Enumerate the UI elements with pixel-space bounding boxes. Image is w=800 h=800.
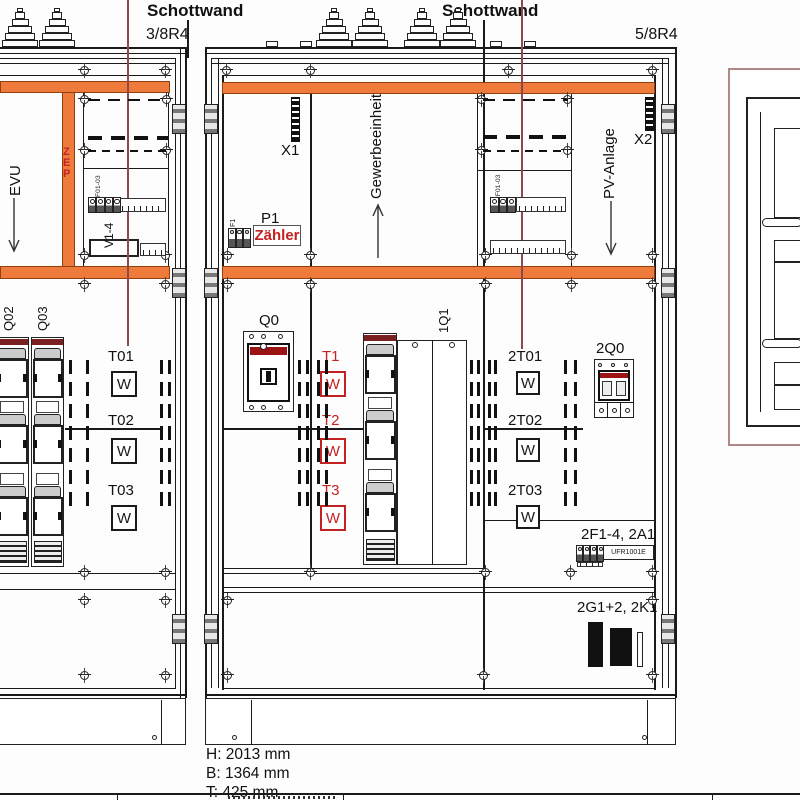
fuse-module-cap [34, 348, 61, 359]
fuse-module-cap [366, 344, 394, 355]
screw-icon [80, 66, 89, 75]
breaker-label-q0: Q0 [259, 313, 279, 329]
screw-icon [161, 596, 170, 605]
cable-gland-icon [352, 40, 388, 47]
cable-gland-icon [450, 19, 467, 26]
screw-hole-icon [261, 405, 266, 410]
cable-gland-icon [414, 19, 431, 26]
screw-hole-icon [598, 363, 602, 367]
screw-hole-icon [152, 735, 157, 740]
t2-connection-line [223, 428, 363, 430]
breaker-q0-handle [266, 371, 271, 382]
roof-stub [490, 41, 502, 47]
screw-icon [80, 280, 89, 289]
screw-hole-icon [612, 408, 617, 413]
schottwand-marker-line-left [187, 20, 189, 58]
screw-icon [504, 66, 513, 75]
panel-line [222, 587, 655, 588]
terminal-rail [119, 198, 166, 212]
cable-gland-icon [440, 40, 476, 47]
fuse-cell-dot [578, 547, 582, 551]
screw-icon [80, 568, 89, 577]
side-view-rail [774, 262, 800, 339]
roof-stub [524, 41, 536, 47]
busbar-dashed-line [69, 360, 72, 513]
subpanel-label-v1-4: V1-4 [103, 223, 116, 248]
screw-icon [481, 568, 490, 577]
meter-w-box: W [320, 438, 346, 464]
fuse-module-pin [365, 436, 369, 444]
schottwand-partition-line [483, 20, 485, 690]
frame-line [0, 63, 176, 64]
dimension-height: H: 2013 mm [206, 745, 290, 764]
fuse-module-pin [58, 440, 62, 448]
contactor-block-icon [588, 622, 603, 667]
cable-gland-icon [316, 40, 352, 47]
fuse-module-pin [0, 512, 1, 520]
cable-gland-icon [453, 12, 463, 19]
zone-label-pv-anlage: PV-Anlage [602, 128, 618, 199]
fuse-module-pin [23, 440, 27, 448]
cable-gland-icon [2, 40, 38, 47]
cable-gland-icon [17, 8, 23, 12]
subpanel-border [477, 170, 572, 171]
busbar-dashed-line [325, 360, 328, 513]
frame-line [222, 688, 655, 689]
busbar-dashed-line [488, 360, 491, 513]
fuse-module-cap [366, 410, 394, 421]
cable-gland-icon [54, 8, 60, 12]
busbar-dashed-line [298, 360, 301, 513]
hinge-icon [204, 104, 218, 134]
meter-point-label: 2T01 [508, 349, 542, 365]
pv-direction-arrow-icon [603, 201, 619, 259]
plinth-left [0, 698, 186, 745]
fuse-module-pin [33, 512, 37, 520]
frame-line [205, 694, 677, 696]
cable-gland-icon [5, 33, 35, 40]
cable-gland-icon [358, 26, 382, 33]
breaker-2q0-line [594, 402, 634, 403]
meter-point-label: T02 [108, 413, 134, 429]
breaker-q0-red-band [250, 347, 287, 355]
fuse-module-pin [0, 440, 1, 448]
side-view-bracket [774, 362, 800, 385]
title-block-border [0, 793, 800, 795]
subpanel-border [477, 94, 478, 266]
roof-stub [300, 41, 312, 47]
fuse-cell-dot [599, 547, 603, 551]
terminal-rail [140, 243, 166, 256]
fuse-module-cap [34, 414, 61, 425]
frame-line [0, 58, 176, 59]
fuse-module-pin [365, 370, 369, 378]
cable-gland-icon [326, 19, 343, 26]
screw-icon [648, 671, 657, 680]
hinge-icon [172, 268, 186, 298]
section-divider [310, 94, 312, 570]
fuse-cell-dot [500, 199, 506, 205]
screw-icon [306, 66, 315, 75]
screw-hole-icon [599, 408, 604, 413]
frame-line [218, 58, 219, 688]
screw-icon [306, 251, 315, 260]
guide-line [127, 0, 129, 346]
schottwand-label-left: Schottwand [147, 2, 243, 20]
terminal-strip-x2-icon [645, 97, 654, 131]
cable-gland-icon [331, 8, 337, 12]
side-view-line [760, 112, 761, 412]
frame-line [0, 75, 171, 76]
fuse-module-pin [365, 508, 369, 516]
meter-w-box: W [516, 371, 540, 395]
meter-name-label: Zähler [254, 227, 299, 244]
fuse-cell-dot [114, 199, 119, 204]
fuse-module-pin [391, 436, 395, 444]
screw-icon [648, 568, 657, 577]
fuse-module-cap [0, 348, 26, 359]
subpanel-border [168, 93, 169, 266]
frame-line [185, 47, 187, 698]
cable-gland-icon [45, 26, 69, 33]
fuse-strip-band [32, 339, 63, 345]
screw-hole-icon [249, 334, 254, 339]
meter-w-box: W [111, 505, 137, 531]
breaker-label-2q0: 2Q0 [596, 341, 624, 357]
frame-line [0, 53, 187, 54]
screw-icon [80, 671, 89, 680]
zone-label-gewerbeeinheit: Gewerbeeinheit [369, 94, 385, 199]
strip-label-q03: Q03 [36, 306, 50, 331]
frame-line [675, 47, 677, 698]
plinth-line [161, 700, 162, 745]
cable-gland-icon [410, 26, 434, 33]
subpanel-border [83, 93, 84, 266]
fuse-connector [36, 473, 59, 485]
cable-gland-icon [417, 12, 427, 19]
terminal-rail [490, 240, 566, 254]
gewerbe-direction-arrow-icon [370, 203, 386, 261]
panel-line [222, 573, 484, 574]
fuse-connector [36, 401, 59, 413]
meter-point-label: 2T02 [508, 413, 542, 429]
screw-icon [80, 596, 89, 605]
hinge-icon [661, 104, 675, 134]
aux-fuse-label-f1: F1 [230, 219, 237, 227]
strip-label-q02: Q02 [2, 306, 16, 331]
cable-gland-icon [355, 33, 385, 40]
busbar-dashed-line [160, 360, 163, 513]
cable-gland-icon [319, 33, 349, 40]
panel-line [222, 568, 484, 569]
screw-icon [306, 280, 315, 289]
fuse-module-pin [23, 512, 27, 520]
terminal-label-x2: X2 [634, 132, 652, 148]
busbar-dashed-line [306, 360, 309, 513]
side-view-bracket [774, 240, 800, 262]
title-block-clipped-text [228, 796, 336, 799]
busbar-cover-top-left [0, 81, 170, 93]
panel-line [222, 592, 655, 593]
cable-gland-icon [39, 40, 75, 47]
screw-hole-icon [278, 405, 283, 410]
frame-line [211, 58, 669, 59]
screw-icon [223, 596, 232, 605]
busbar-dashed-line [564, 360, 567, 513]
meter-w-box: W [320, 371, 346, 397]
roof-stub [266, 41, 278, 47]
meter-w-box: W [320, 505, 346, 531]
meter-w-box: W [516, 505, 540, 529]
feed-label-evu: EVU [8, 165, 24, 196]
terminal-label-x1: X1 [281, 143, 299, 159]
screw-hole-icon [278, 334, 283, 339]
subpanel-border [571, 94, 572, 266]
cable-gland-icon [329, 12, 339, 19]
frame-line [211, 63, 669, 64]
screw-hole-icon [624, 363, 628, 367]
frame-line [175, 58, 176, 688]
frame-line [0, 688, 176, 689]
fuse-strip-terminal [0, 541, 27, 563]
meter-w-box: W [516, 438, 540, 462]
screw-hole-icon [611, 363, 615, 367]
contactor-block-icon [610, 628, 632, 666]
breaker-2q0-line [607, 402, 608, 418]
frame-line [180, 47, 181, 698]
subpanel-border [83, 168, 169, 169]
relay-group-label: 2F1-4, 2A1 [581, 527, 655, 543]
screw-icon [481, 251, 490, 260]
fuse-connector [368, 469, 392, 481]
busbar-dashed-line [168, 360, 171, 513]
frame-line [211, 58, 212, 688]
screw-icon [223, 251, 232, 260]
relay-device-label: UFR1001E [611, 549, 646, 556]
cable-gland-icon [15, 12, 25, 19]
busbar-dashed-line [483, 99, 568, 101]
fuse-strip-terminal [366, 539, 395, 561]
contactor-rail-icon [637, 632, 643, 667]
cable-gland-icon [362, 19, 379, 26]
terminal-rail [516, 197, 566, 212]
frame-line [662, 58, 663, 688]
frame-line [205, 47, 677, 49]
meter-point-label: T03 [108, 483, 134, 499]
frame-line [668, 58, 669, 688]
guide-line [521, 0, 523, 349]
screw-hole-icon [249, 405, 254, 410]
title-block-divider [117, 793, 118, 800]
busbar-dashed-line [477, 360, 480, 513]
frame-line [0, 47, 187, 49]
screw-icon [161, 280, 170, 289]
cable-gland-icon [12, 19, 29, 26]
cable-gland-icon [443, 33, 473, 40]
screw-icon [567, 251, 576, 260]
screw-icon [222, 66, 231, 75]
busbar-dashed-line [470, 360, 473, 513]
busbar-cover-mid-left [0, 266, 170, 279]
hinge-icon [172, 614, 186, 644]
busbar-dashed-line [483, 150, 568, 152]
meter-point-label: T01 [108, 349, 134, 365]
screw-icon [648, 66, 657, 75]
fuse-switch-label-1q1: 1Q1 [437, 308, 451, 333]
side-view-rail [774, 128, 800, 218]
plinth-line [647, 700, 648, 745]
fuse-connector [368, 397, 392, 409]
cable-gland-icon [322, 26, 346, 33]
fuse-module-pin [58, 512, 62, 520]
busbar-dashed-line [483, 135, 568, 139]
screw-icon [648, 596, 657, 605]
screw-hole-icon [642, 735, 647, 740]
fuse-module-pin [58, 374, 62, 382]
fuse-module-cap [34, 486, 61, 497]
mounting-panel-line [432, 340, 433, 565]
title-block-divider [712, 793, 713, 800]
panel-line [484, 520, 655, 521]
breaker-2q0-line [620, 402, 621, 418]
cable-gland-icon [446, 26, 470, 33]
evu-direction-arrow-icon [6, 198, 22, 256]
screw-icon [481, 280, 490, 289]
busbar-dashed-line [86, 360, 89, 513]
subpanel-small-label: F01-03 [96, 175, 103, 197]
terminal-strip-x1-icon [291, 97, 300, 142]
hinge-icon [661, 614, 675, 644]
meter-point-label: 2T03 [508, 483, 542, 499]
fuse-module-cap [366, 482, 394, 493]
plinth-middle [205, 698, 676, 745]
side-view-hinge-icon [762, 218, 800, 227]
busbar-dashed-line [88, 99, 168, 101]
side-view-rail [774, 385, 800, 410]
contactor-group-label: 2G1+2, 2K1 [577, 600, 657, 616]
fuse-strip-band [364, 335, 396, 341]
screw-icon [161, 66, 170, 75]
fuse-cell-dot [592, 547, 596, 551]
fuse-module-pin [391, 508, 395, 516]
hinge-icon [661, 268, 675, 298]
fuse-module-pin [33, 440, 37, 448]
fuse-strip-terminal [34, 541, 62, 563]
zep-label: ZEP [63, 147, 75, 180]
fuse-connector [0, 473, 24, 485]
rack-code-right: 5/8R4 [635, 27, 678, 44]
screw-hole-icon [261, 334, 266, 339]
fuse-cell-dot [90, 199, 95, 204]
screw-icon [80, 251, 89, 260]
hinge-icon [172, 104, 186, 134]
screw-icon [161, 671, 170, 680]
breaker-2q0-red-band [600, 373, 628, 378]
cable-gland-icon [42, 33, 72, 40]
terminal-rail [577, 562, 603, 567]
frame-line [205, 53, 677, 54]
frame-line [205, 47, 207, 698]
cable-gland-icon [49, 19, 66, 26]
hinge-icon [204, 614, 218, 644]
screw-icon [223, 671, 232, 680]
breaker-2q0-pole [602, 381, 612, 396]
cable-gland-icon [419, 8, 425, 12]
side-view-hinge-icon [762, 339, 800, 348]
frame-line [0, 694, 187, 696]
breaker-2q0-pole [616, 381, 626, 396]
cable-gland-icon [407, 33, 437, 40]
fuse-cell-dot [585, 547, 589, 551]
cable-gland-icon [404, 40, 440, 47]
fuse-cell-dot [237, 230, 242, 235]
screw-hole-icon [449, 342, 455, 348]
screw-icon [648, 251, 657, 260]
fuse-module-pin [23, 374, 27, 382]
plinth-line [251, 700, 252, 745]
screw-hole-icon [232, 735, 237, 740]
cabinet-layout-drawing: Schottwand Schottwand 3/8R4 5/8R4 [0, 0, 800, 800]
panel-line [0, 589, 176, 590]
fuse-module-cap [0, 414, 26, 425]
busbar-dashed-line [88, 150, 168, 152]
screw-hole-icon [412, 342, 418, 348]
busbar-cover-mid-middle [222, 266, 655, 279]
screw-hole-icon [260, 343, 267, 350]
screw-icon [223, 280, 232, 289]
cable-gland-icon [367, 8, 373, 12]
busbar-dashed-line [88, 136, 168, 140]
fuse-module-pin [33, 374, 37, 382]
hinge-icon [204, 268, 218, 298]
screw-icon [567, 280, 576, 289]
screw-icon [306, 568, 315, 577]
screw-icon [479, 671, 488, 680]
busbar-dashed-line [494, 360, 497, 513]
fuse-connector [0, 401, 24, 413]
busbar-dashed-line [574, 360, 577, 513]
dimension-width: B: 1364 mm [206, 764, 290, 783]
title-block-divider [343, 793, 344, 800]
cable-gland-icon [52, 12, 62, 19]
cable-gland-icon [365, 12, 375, 19]
fuse-module-pin [0, 374, 1, 382]
meter-w-box: W [111, 438, 137, 464]
screw-hole-icon [625, 408, 630, 413]
screw-icon [648, 280, 657, 289]
busbar-cover-top-middle [222, 82, 655, 94]
frame-line [222, 75, 655, 76]
fuse-cell-dot [106, 199, 111, 204]
cable-gland-icon [8, 26, 32, 33]
meter-w-box: W [111, 371, 137, 397]
rack-code-left: 3/8R4 [146, 27, 189, 44]
fuse-strip-band [0, 339, 28, 345]
cable-gland-icon [455, 8, 461, 12]
busbar-dashed-line [317, 360, 320, 513]
fuse-module-pin [391, 370, 395, 378]
screw-icon [161, 568, 170, 577]
fuse-module-cap [0, 486, 26, 497]
fuse-cell-dot [98, 199, 103, 204]
screw-icon [566, 568, 575, 577]
